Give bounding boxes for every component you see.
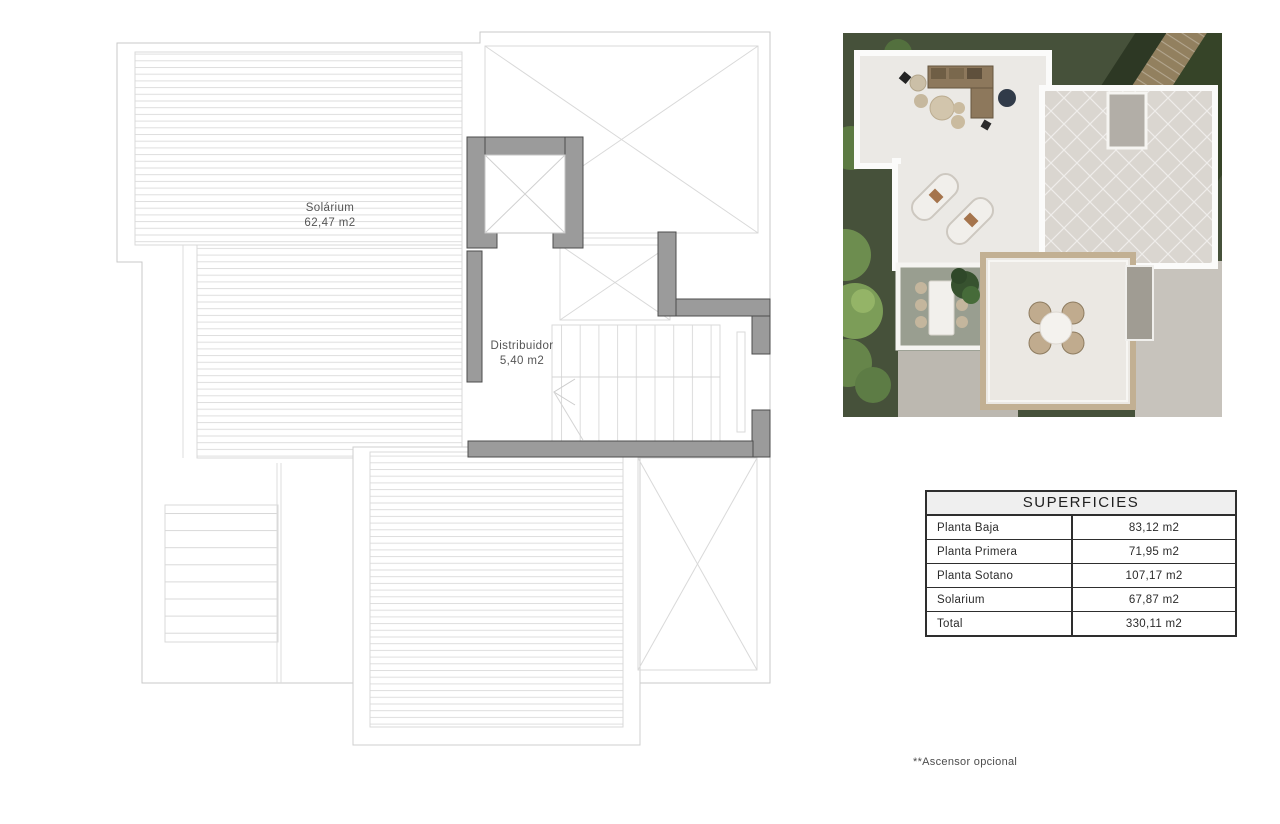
table-row: Planta Baja 83,12 m2 bbox=[927, 516, 1235, 540]
row-value: 330,11 m2 bbox=[1073, 612, 1235, 635]
pouf bbox=[910, 75, 926, 91]
row-label: Planta Baja bbox=[927, 516, 1073, 539]
tiled-roof bbox=[1042, 88, 1215, 266]
superficies-table: SUPERFICIES Planta Baja 83,12 m2 Planta … bbox=[925, 490, 1237, 637]
table-row: Planta Sotano 107,17 m2 bbox=[927, 564, 1235, 588]
solarium-deck-hatch-top bbox=[135, 52, 462, 245]
row-value: 71,95 m2 bbox=[1073, 540, 1235, 563]
plan-sheet: Solárium 62,47 m2 Distribuidor 5,40 m2 bbox=[0, 0, 1280, 824]
pouf-small bbox=[914, 94, 928, 108]
room-label-distribuidor: Distribuidor bbox=[491, 340, 554, 352]
stairwell-void bbox=[1126, 266, 1153, 340]
side-table bbox=[953, 102, 965, 114]
row-label: Total bbox=[927, 612, 1073, 635]
superficies-table-title: SUPERFICIES bbox=[927, 492, 1235, 516]
dining-terrace bbox=[983, 255, 1133, 407]
solarium-deck-hatch-bottom bbox=[370, 452, 623, 727]
room-label-solarium: Solárium bbox=[306, 202, 355, 214]
solarium-deck-hatch-middle bbox=[197, 245, 462, 458]
table-row: Planta Primera 71,95 m2 bbox=[927, 540, 1235, 564]
elevator-footnote: **Ascensor opcional bbox=[913, 756, 1017, 768]
table-row: Solarium 67,87 m2 bbox=[927, 588, 1235, 612]
side-table bbox=[951, 115, 965, 129]
roof-void-middle bbox=[560, 245, 670, 320]
villa-aerial-render bbox=[843, 33, 1222, 417]
table-row: Total 330,11 m2 bbox=[927, 612, 1235, 635]
exterior-steps bbox=[165, 505, 278, 642]
lower-roof-notch bbox=[1108, 93, 1146, 148]
room-area-solarium: 62,47 m2 bbox=[304, 217, 355, 229]
room-area-distribuidor: 5,40 m2 bbox=[500, 355, 544, 367]
terrace-join bbox=[901, 157, 1042, 171]
courtyard bbox=[898, 265, 991, 348]
row-value: 107,17 m2 bbox=[1073, 564, 1235, 587]
row-value: 83,12 m2 bbox=[1073, 516, 1235, 539]
staircase bbox=[552, 325, 745, 441]
row-label: Solarium bbox=[927, 588, 1073, 611]
roof-void-bottom-right bbox=[638, 458, 757, 670]
round-table bbox=[1040, 312, 1072, 344]
plant-pot bbox=[998, 89, 1016, 107]
elevator-cab-symbol bbox=[485, 155, 565, 233]
row-label: Planta Primera bbox=[927, 540, 1073, 563]
row-label: Planta Sotano bbox=[927, 564, 1073, 587]
row-value: 67,87 m2 bbox=[1073, 588, 1235, 611]
coffee-table bbox=[930, 96, 954, 120]
floor-plan: Solárium 62,47 m2 Distribuidor 5,40 m2 bbox=[0, 0, 800, 790]
